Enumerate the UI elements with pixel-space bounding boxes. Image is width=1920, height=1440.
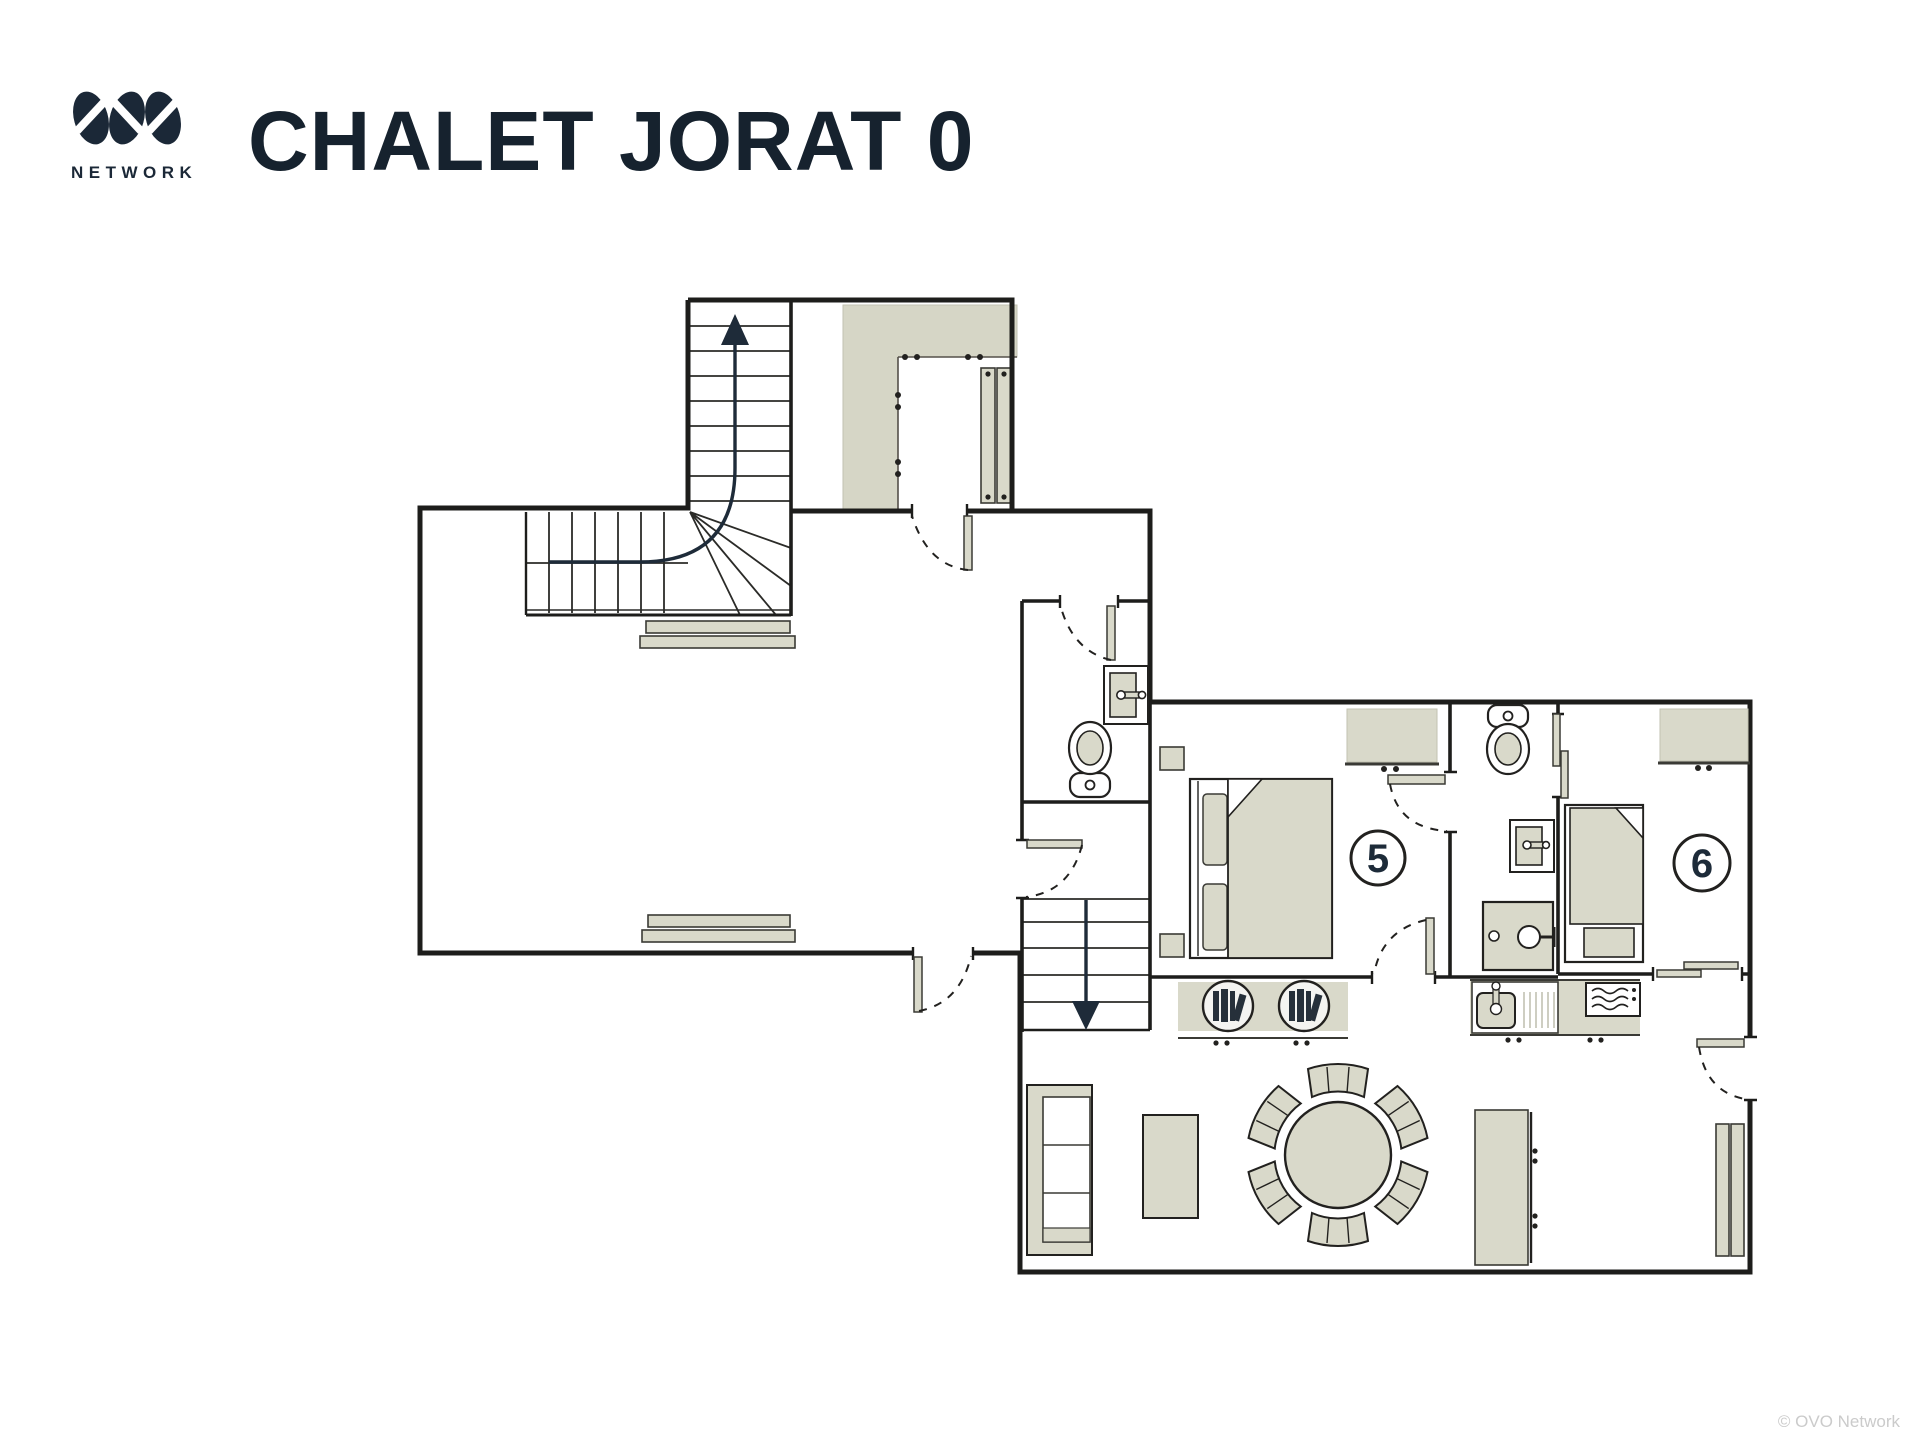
door-wc: [1060, 604, 1115, 660]
door-entry-room: [912, 516, 972, 570]
bench-under-stairs: [640, 621, 795, 648]
wc-washbasin: [1104, 666, 1148, 724]
coffee-table: [1143, 1115, 1198, 1218]
bathroom: [1483, 705, 1554, 970]
svg-text:6: 6: [1691, 842, 1713, 886]
wardrobe-entry: [981, 368, 1011, 503]
staircase-upper-treads: [526, 326, 791, 615]
svg-text:5: 5: [1367, 837, 1389, 881]
sofa: [1027, 1085, 1092, 1255]
bookshelf-round: [1279, 981, 1329, 1031]
door-bedroom5-living: [1374, 918, 1434, 974]
staircase-down-arrow: [1072, 900, 1100, 1030]
watermark: © OVO Network: [1778, 1412, 1900, 1432]
floorplan: 5: [0, 0, 1920, 1440]
radiator-living: [1716, 1124, 1744, 1256]
wardrobe-bedroom5: [1345, 709, 1439, 772]
counter-feet: [1505, 1037, 1603, 1042]
double-bed: [1190, 779, 1332, 958]
bookshelf-round: [1203, 981, 1253, 1031]
door-entrance-right: [1697, 1039, 1745, 1099]
room-badge-6: 6: [1674, 835, 1730, 891]
nightstand: [1160, 934, 1184, 957]
door-bedroom5-bathroom: [1388, 775, 1447, 831]
nightstand: [1160, 747, 1184, 770]
sliding-door-bedroom6: [1657, 962, 1738, 977]
bookshelf-console: [1178, 981, 1348, 1046]
door-left-room: [914, 956, 971, 1012]
sliding-door-bathroom: [1553, 714, 1568, 798]
dining-set: [1244, 1064, 1432, 1246]
bedroom6: 6: [1565, 709, 1750, 962]
radiator-left-room: [642, 915, 795, 942]
wc-toilet: [1069, 722, 1111, 797]
room-badge-5: 5: [1351, 831, 1405, 885]
bathroom-washbasin: [1510, 820, 1554, 872]
door-landing: [1026, 840, 1082, 897]
single-bed: [1565, 805, 1643, 962]
shower: [1483, 902, 1554, 970]
page: NETWORK CHALET JORAT 0: [0, 0, 1920, 1440]
bedroom5: 5: [1160, 709, 1439, 958]
wardrobe-bedroom6: [1658, 709, 1750, 771]
sideboard: [1475, 1110, 1538, 1265]
kitchen-sink: [1472, 982, 1558, 1033]
round-dining-table: [1285, 1102, 1391, 1208]
kitchen: [1470, 980, 1640, 1043]
bathroom-toilet: [1487, 705, 1529, 774]
coat-hooks: [895, 354, 983, 477]
microwave: [1586, 983, 1640, 1016]
